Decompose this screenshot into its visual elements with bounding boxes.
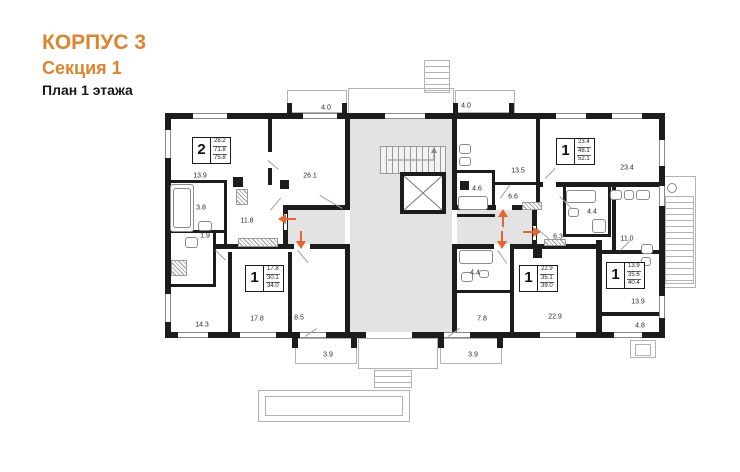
room-area-label: 1.9: [200, 233, 210, 240]
entry-arrow-icon: [296, 231, 306, 249]
entry-arrow-icon: [497, 231, 507, 249]
room-area-label: 23.4: [620, 165, 634, 172]
apartment-rooms-count: 1: [557, 139, 575, 164]
apartment-areas: 23.4 48.1 52.1: [575, 139, 594, 164]
room-area-label: 7.8: [477, 316, 487, 323]
living-area: 22.9: [540, 266, 554, 275]
room-area-label: 4.0: [461, 103, 471, 110]
room-area-label: 13.9: [631, 299, 645, 306]
room-area-label: 17.8: [250, 316, 264, 323]
total-area: 40.4: [627, 280, 641, 288]
apartment-areas: 28.2 71.8 75.8: [211, 138, 230, 163]
apartment-areas: 17.8 30.1 34.0: [264, 266, 283, 291]
usable-area: 48.1: [577, 148, 591, 157]
total-area: 75.8: [213, 155, 227, 163]
apartment-rooms-count: 2: [193, 138, 211, 163]
living-area: 13.9: [627, 263, 641, 272]
apartment-badge: 1 22.9 35.1 39.0: [519, 265, 558, 292]
room-area-label: 3.9: [468, 352, 478, 359]
room-area-label: 3.9: [323, 352, 333, 359]
usable-area: 35.1: [540, 275, 554, 284]
usable-area: 30.1: [266, 275, 280, 284]
total-area: 34.0: [266, 283, 280, 291]
room-area-label: 6.6: [508, 194, 518, 201]
apartment-badge: 2 28.2 71.8 75.8: [192, 137, 231, 164]
apartment-badge: 1 17.8 30.1 34.0: [245, 265, 284, 292]
entry-arrow-icon: [278, 214, 296, 224]
room-area-label: 4.4: [587, 209, 597, 216]
apartment-rooms-count: 1: [607, 263, 625, 288]
apartment-areas: 13.9 35.6 40.4: [625, 263, 644, 288]
floor-plan-canvas: 4.04.013.926.13.811.81.914.317.88.53.94.…: [0, 0, 740, 472]
room-area-label: 11.0: [620, 236, 633, 243]
room-area-label: 4.8: [635, 323, 645, 330]
living-area: 17.8: [266, 266, 280, 275]
apartment-badge: 1 13.9 35.6 40.4: [606, 262, 645, 289]
entry-arrow-icon: [498, 209, 508, 227]
room-area-label: 26.1: [303, 173, 317, 180]
apartment-rooms-count: 1: [520, 266, 538, 291]
room-area-label: 13.9: [193, 173, 207, 180]
room-area-label: 4.4: [470, 270, 480, 277]
apartment-badge: 1 23.4 48.1 52.1: [556, 138, 595, 165]
usable-area: 71.8: [213, 147, 227, 156]
usable-area: 35.6: [627, 272, 641, 281]
total-area: 52.1: [577, 156, 591, 164]
room-area-label: 11.8: [240, 218, 253, 225]
apartment-areas: 22.9 35.1 39.0: [538, 266, 557, 291]
room-area-label: 13.5: [511, 168, 525, 175]
room-area-label: 3.8: [196, 205, 206, 212]
room-area-label: 6.3: [553, 234, 563, 241]
living-area: 23.4: [577, 139, 591, 148]
total-area: 39.0: [540, 283, 554, 291]
room-area-label: 8.5: [294, 315, 304, 322]
room-area-label: 22.9: [548, 314, 562, 321]
room-area-label: 14.3: [195, 322, 209, 329]
apartment-rooms-count: 1: [246, 266, 264, 291]
room-area-label: 4.0: [321, 105, 331, 112]
room-area-label: 4.6: [472, 186, 482, 193]
entry-arrow-icon: [523, 227, 541, 237]
living-area: 28.2: [213, 138, 227, 147]
